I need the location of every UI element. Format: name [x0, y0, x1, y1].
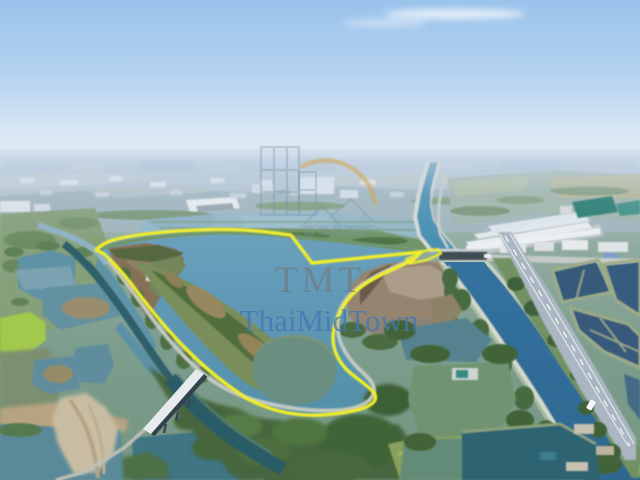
svg-text:TMT: TMT — [275, 260, 365, 301]
svg-text:ThaiMidTown: ThaiMidTown — [240, 303, 419, 338]
